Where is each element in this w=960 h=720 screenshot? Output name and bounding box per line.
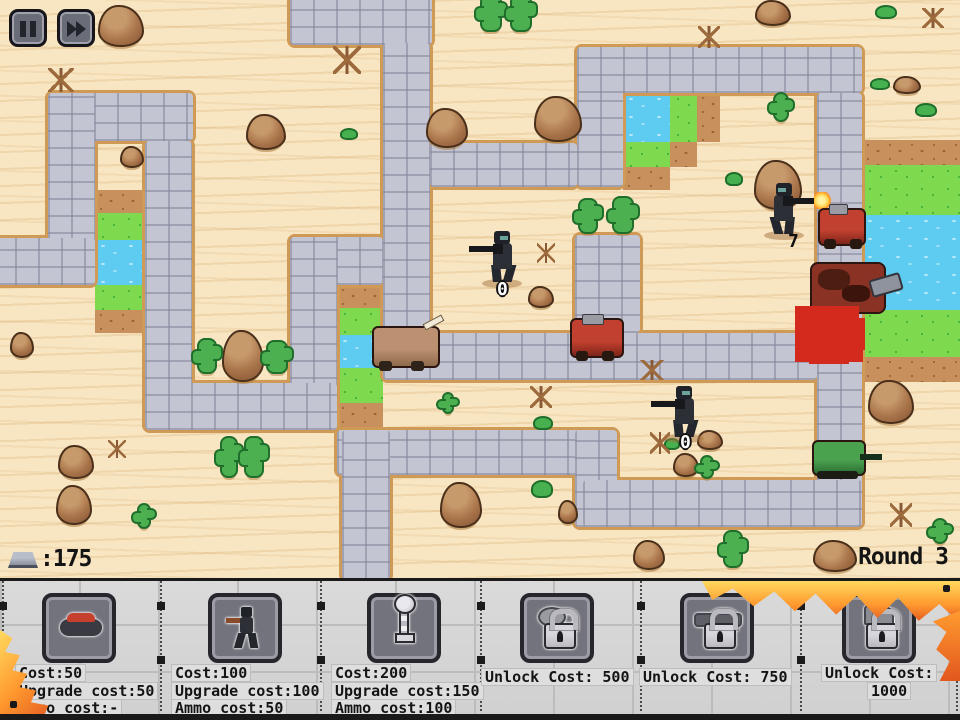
slot-cost-label: Upgrade cost:150 bbox=[332, 683, 483, 699]
grass-tile bbox=[623, 142, 670, 167]
path-segment bbox=[583, 480, 862, 527]
rock bbox=[633, 540, 665, 570]
mine-icon bbox=[60, 619, 102, 636]
cactus bbox=[723, 530, 743, 568]
bush bbox=[531, 480, 553, 498]
soldier-head bbox=[776, 183, 791, 196]
soldier-gun bbox=[651, 401, 679, 407]
rock bbox=[426, 108, 468, 148]
dirt-tile bbox=[623, 167, 670, 190]
soldier-head bbox=[676, 386, 691, 399]
dirt-tile bbox=[337, 403, 383, 430]
dead-bush bbox=[530, 386, 552, 408]
pause-button[interactable] bbox=[9, 9, 47, 47]
ammo-counter: 7 bbox=[788, 233, 799, 251]
cactus bbox=[137, 503, 151, 529]
padlock-icon bbox=[544, 623, 576, 649]
dead-bush bbox=[333, 46, 361, 74]
slot-cost-label: Upgrade cost:100 bbox=[172, 683, 323, 699]
rock bbox=[98, 5, 144, 47]
rock bbox=[120, 146, 144, 168]
lock-icon bbox=[536, 605, 582, 651]
rock bbox=[10, 332, 34, 358]
slot-cost-label: Upgrade cost:50 bbox=[16, 683, 157, 699]
cactus bbox=[700, 455, 714, 479]
fast-forward-button[interactable] bbox=[57, 9, 95, 47]
money-label: :175 bbox=[40, 546, 91, 572]
cactus bbox=[612, 196, 634, 234]
dead-bush bbox=[922, 8, 944, 28]
enemy-unit bbox=[812, 440, 866, 476]
rock bbox=[440, 482, 482, 528]
slot-cost-label: Unlock Cost: 500 bbox=[482, 669, 633, 685]
path-segment bbox=[342, 430, 390, 580]
cactus bbox=[510, 0, 532, 32]
rock bbox=[813, 540, 857, 572]
rock bbox=[222, 330, 264, 382]
grass-tile bbox=[95, 213, 145, 240]
rifleman-part bbox=[234, 633, 246, 648]
game-map[interactable]: 070 :175 Round 3 Cost:50Upgrade cost:50A… bbox=[0, 0, 960, 720]
path-segment bbox=[577, 47, 862, 93]
water-tile bbox=[95, 240, 145, 285]
rock bbox=[246, 114, 286, 150]
round-label: Round 3 bbox=[858, 544, 948, 570]
rock bbox=[755, 0, 791, 26]
grass-tile bbox=[862, 165, 960, 215]
enemy-unit bbox=[372, 326, 440, 368]
bush bbox=[915, 103, 937, 117]
slot-cost-label: Ammo cost:50 bbox=[172, 700, 286, 716]
dirt-tile bbox=[95, 310, 145, 333]
soldier-unit[interactable] bbox=[478, 228, 526, 286]
dead-bush bbox=[640, 360, 664, 380]
path-segment bbox=[430, 143, 577, 187]
cactus bbox=[220, 436, 238, 478]
padlock-icon bbox=[866, 623, 898, 649]
cactus bbox=[773, 92, 789, 122]
bush bbox=[533, 416, 553, 430]
dirt-tile bbox=[670, 142, 697, 167]
slot-cost-label: Unlock Cost: 750 bbox=[640, 669, 791, 685]
soldier-gun bbox=[469, 246, 497, 252]
soldier-gun bbox=[789, 198, 817, 204]
dead-bush bbox=[537, 243, 555, 263]
slot-periscope-button[interactable] bbox=[367, 593, 441, 663]
grass-tile bbox=[862, 310, 960, 357]
slot-cost-label: Cost:200 bbox=[332, 665, 410, 681]
rock bbox=[56, 485, 92, 525]
bush bbox=[725, 172, 743, 186]
grass-tile bbox=[337, 368, 383, 403]
dead-bush bbox=[890, 503, 912, 527]
slot-cost-label: 1000 bbox=[868, 683, 910, 699]
dirt-tile bbox=[862, 140, 960, 165]
metal-ingot-icon bbox=[8, 552, 38, 568]
padlock-icon bbox=[704, 623, 736, 649]
rifleman-part bbox=[240, 617, 253, 634]
grass-tile bbox=[670, 93, 697, 142]
rivet-icon bbox=[10, 701, 17, 708]
slot-cost-label: Unlock Cost: bbox=[822, 665, 936, 681]
cactus bbox=[578, 198, 598, 234]
dead-bush bbox=[48, 68, 74, 92]
shop-panel: Cost:50Upgrade cost:50Ammo cost:-Cost:10… bbox=[0, 578, 960, 720]
lock-icon bbox=[696, 605, 742, 651]
rock bbox=[893, 76, 921, 94]
bush bbox=[870, 78, 890, 90]
rivet-icon bbox=[943, 585, 950, 592]
ammo-counter: 0 bbox=[497, 281, 508, 299]
dirt-tile bbox=[337, 285, 383, 308]
slot-cost-label: Cost:50 bbox=[16, 665, 85, 681]
rifleman-part bbox=[248, 633, 259, 648]
bush bbox=[340, 128, 358, 140]
cactus bbox=[244, 436, 264, 478]
dirt-tile bbox=[95, 190, 145, 213]
cactus bbox=[266, 340, 288, 374]
enemy-unit bbox=[570, 318, 624, 358]
cactus bbox=[932, 518, 948, 544]
rifleman-icon bbox=[226, 605, 266, 651]
bush bbox=[875, 5, 897, 19]
rock bbox=[528, 286, 554, 308]
path-segment bbox=[0, 238, 95, 285]
scope-icon bbox=[399, 605, 409, 643]
slot-locked-1-button[interactable] bbox=[520, 593, 594, 663]
path-segment bbox=[145, 141, 192, 430]
soldier-unit[interactable] bbox=[760, 180, 808, 238]
slot-locked-2-button[interactable] bbox=[680, 593, 754, 663]
path-segment bbox=[290, 0, 432, 45]
ammo-counter: 0 bbox=[680, 434, 691, 452]
dirt-tile bbox=[862, 357, 960, 382]
cactus bbox=[480, 0, 502, 32]
rock bbox=[868, 380, 914, 424]
damage-marks bbox=[795, 306, 835, 338]
dirt-tile bbox=[697, 93, 720, 142]
rifleman-part bbox=[241, 607, 252, 617]
soldier-head bbox=[494, 231, 509, 244]
cactus bbox=[442, 392, 454, 414]
slot-cost-label: Cost:100 bbox=[172, 665, 250, 681]
cactus bbox=[197, 338, 217, 374]
slot-landmine-button[interactable] bbox=[42, 593, 116, 663]
rock bbox=[58, 445, 94, 479]
slot-rifleman-button[interactable] bbox=[208, 593, 282, 663]
dead-bush bbox=[108, 440, 126, 458]
water-tile bbox=[623, 93, 670, 142]
dead-bush bbox=[698, 26, 720, 48]
grass-tile bbox=[95, 285, 145, 310]
slot-cost-label: Ammo cost:100 bbox=[332, 700, 455, 716]
panel-separator bbox=[160, 581, 162, 711]
enemy-unit bbox=[818, 208, 866, 246]
panel-separator bbox=[640, 581, 642, 711]
